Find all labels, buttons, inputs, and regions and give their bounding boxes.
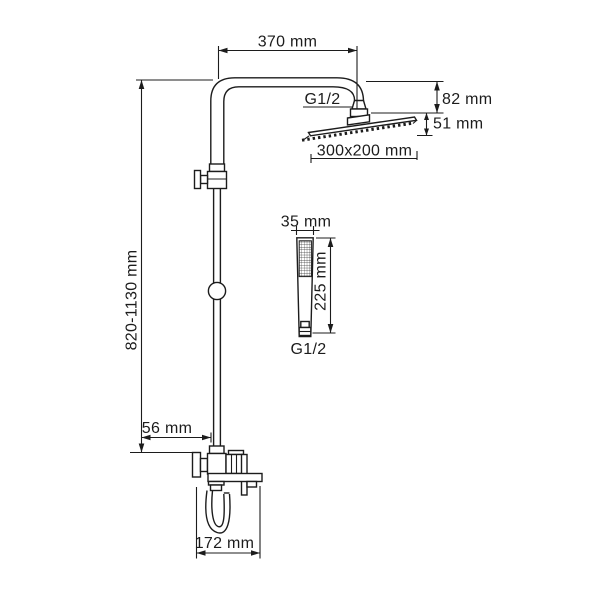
diverter-knob — [195, 171, 201, 189]
hose-coupling — [211, 485, 222, 491]
height-adjuster-clamp — [195, 164, 227, 189]
spout-outlet — [247, 482, 257, 488]
shower-hose — [206, 491, 230, 534]
dim-head-size: 300x200 mm — [311, 143, 417, 164]
slider-holder — [208, 282, 225, 299]
shower-system-drawing: 370 mm G1/2 82 mm 51 mm 300x200 mm 35 mm… — [0, 0, 600, 600]
head-connector — [348, 101, 370, 126]
knob-stem — [201, 176, 208, 184]
dim-wall-offset: 56 mm — [142, 420, 212, 443]
bath-spout — [208, 474, 262, 482]
label-riser-height: 820-1130 mm — [124, 250, 141, 351]
label-arm-length: 370 mm — [258, 34, 318, 51]
wall-mount-flange — [193, 453, 201, 478]
dim-handshower-width: 35 mm — [281, 214, 331, 236]
label-handshower-thread: G1/2 — [291, 341, 327, 358]
riser-base-connector — [210, 446, 225, 454]
mixer — [193, 446, 263, 495]
label-handshower-width: 35 mm — [281, 214, 331, 231]
hand-shower-connector — [299, 322, 311, 336]
label-head-depth: 51 mm — [433, 116, 483, 133]
dim-riser-height: 820-1130 mm — [124, 80, 214, 453]
hand-shower-spray-face — [299, 241, 311, 277]
mixer-body — [208, 454, 227, 475]
label-handshower-length: 225 mm — [313, 251, 330, 311]
label-head-drop: 82 mm — [442, 91, 492, 108]
label-head-size: 300x200 mm — [317, 143, 413, 160]
dim-head-depth: 51 mm — [417, 113, 483, 136]
cartridge — [226, 455, 243, 474]
riser-pipe — [214, 189, 221, 448]
technical-drawing-page: 370 mm G1/2 82 mm 51 mm 300x200 mm 35 mm… — [0, 0, 600, 600]
flange-stem — [201, 459, 208, 472]
label-mixer-width: 172 mm — [195, 535, 255, 552]
dim-head-thread: G1/2 — [303, 91, 352, 108]
dim-handshower-length: 225 mm — [313, 238, 336, 333]
dim-mixer-width: 172 mm — [195, 486, 260, 559]
dim-head-drop: 82 mm — [366, 82, 492, 114]
label-head-thread: G1/2 — [305, 91, 341, 108]
label-wall-offset: 56 mm — [142, 420, 192, 437]
hand-shower — [297, 238, 313, 337]
